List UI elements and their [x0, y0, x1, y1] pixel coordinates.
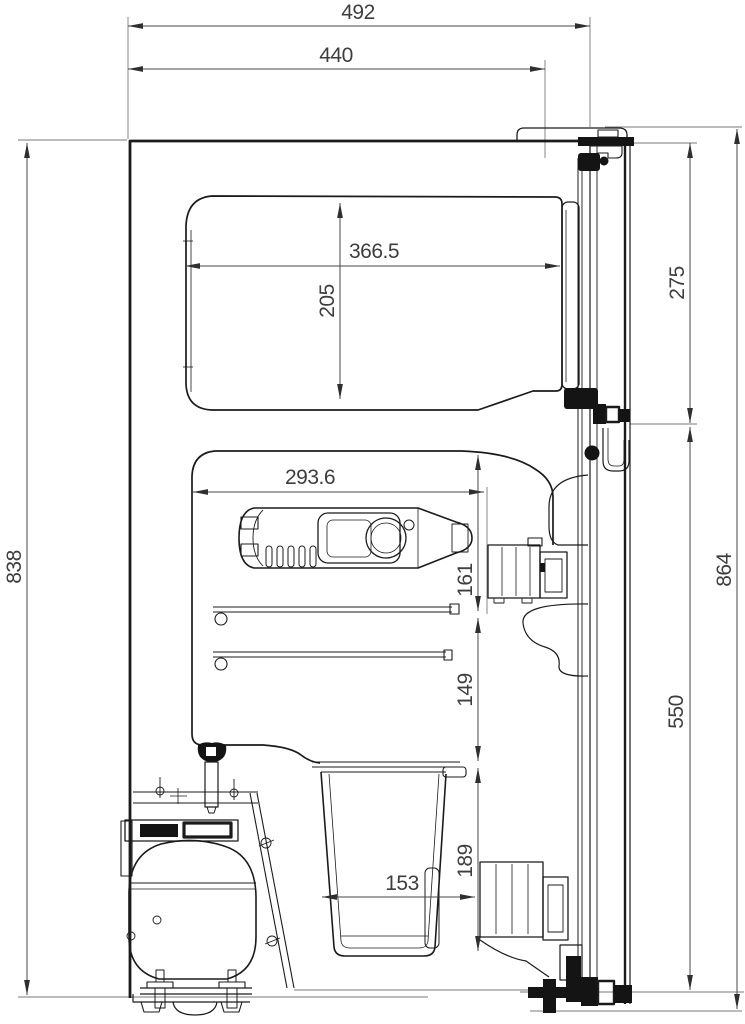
dim-550-label: 550 [665, 695, 688, 729]
dim-838-label: 838 [3, 550, 26, 584]
section-drawing: 492 440 366.5 205 275 864 838 293.6 161 … [0, 0, 745, 1024]
door-rack-upper [488, 545, 540, 598]
dim-149-label: 149 [454, 673, 477, 707]
dim-189-label: 189 [454, 844, 477, 878]
dim-275-label: 275 [666, 266, 689, 300]
shelf-upper [213, 604, 459, 625]
dim-440-label: 440 [319, 44, 353, 67]
dim-153-label: 153 [385, 872, 419, 895]
shelf-lower [213, 650, 452, 670]
hinge-bottom [528, 945, 632, 1013]
dim-492-label: 492 [341, 1, 375, 24]
door-rack-lower [480, 862, 543, 937]
compressor-dome [129, 840, 256, 979]
dim-161-label: 161 [454, 563, 477, 597]
mounting-screws [156, 777, 238, 804]
door-liner [480, 475, 588, 977]
dim-205-label: 205 [316, 284, 339, 318]
crisper-drawer [321, 772, 446, 956]
crisper-cover [312, 762, 466, 777]
compressor-bay [121, 742, 294, 1015]
dim-366-label: 366.5 [349, 240, 399, 263]
freezer-compartment [183, 196, 579, 410]
thermostat-unit [239, 508, 472, 568]
drain-tube [205, 762, 218, 807]
extension-lines [18, 17, 744, 1011]
dim-293-label: 293.6 [285, 466, 335, 489]
drawing-canvas: 492 440 366.5 205 275 864 838 293.6 161 … [0, 0, 745, 1024]
vent-slots [266, 546, 316, 567]
door [578, 141, 630, 1004]
door-liner-channel [562, 202, 579, 389]
dim-864-label: 864 [713, 552, 736, 586]
